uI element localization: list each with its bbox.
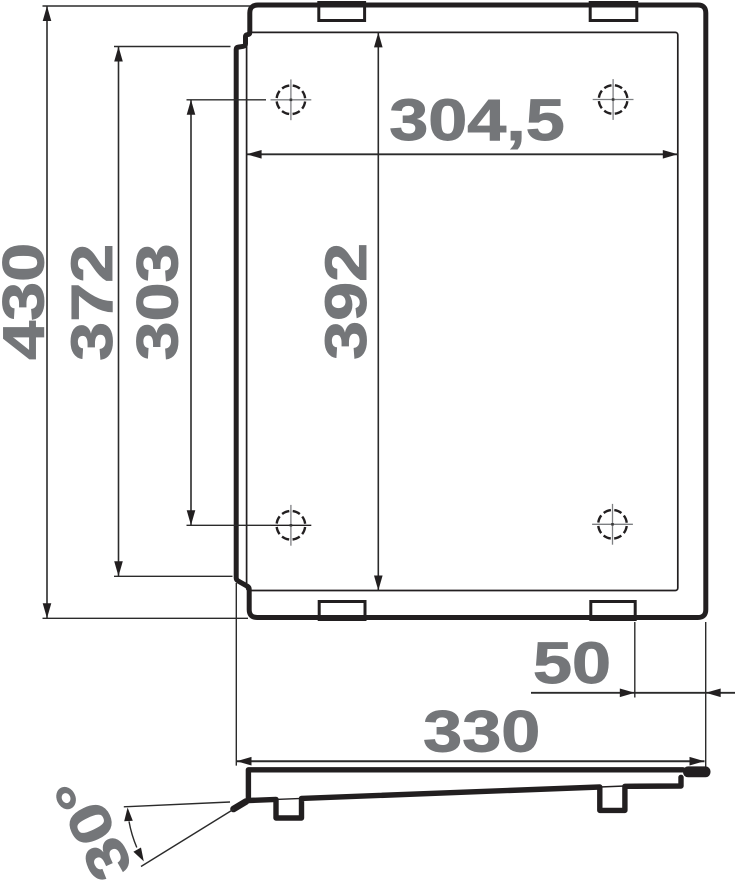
svg-text:50: 50 <box>533 631 611 696</box>
svg-text:372: 372 <box>60 244 125 361</box>
svg-text:392: 392 <box>314 243 379 360</box>
svg-text:304,5: 304,5 <box>389 88 565 153</box>
svg-text:430: 430 <box>0 243 56 360</box>
svg-text:303: 303 <box>125 243 190 360</box>
svg-text:330: 330 <box>423 699 540 764</box>
